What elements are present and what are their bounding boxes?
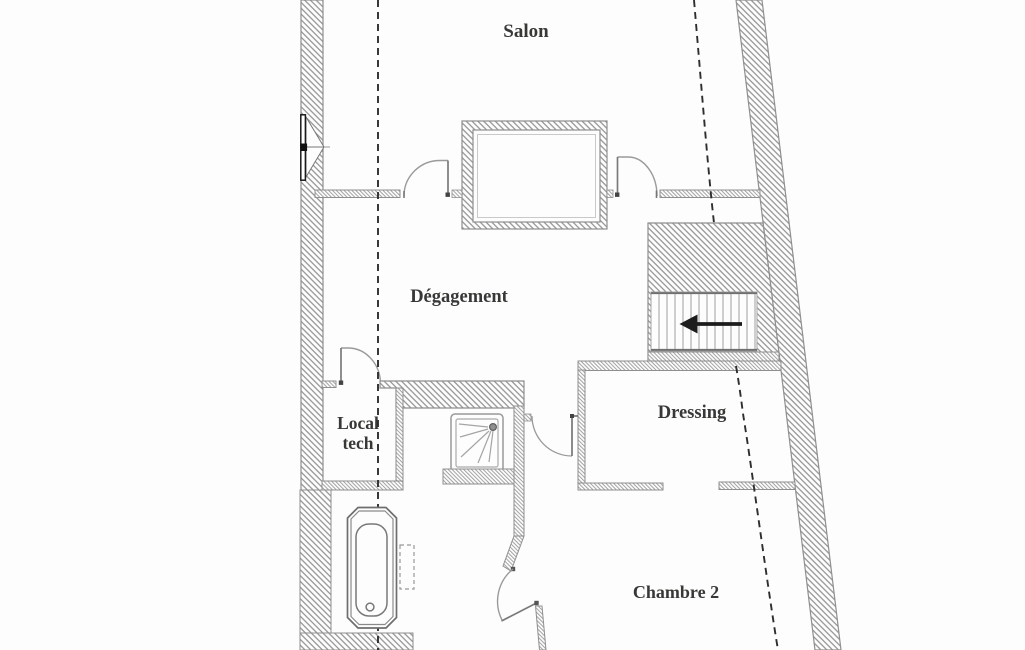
svg-text:Local: Local [337,413,379,433]
svg-text:Dégagement: Dégagement [410,287,508,307]
svg-text:tech: tech [342,433,373,453]
svg-text:Dressing: Dressing [658,403,727,423]
svg-text:Chambre 2: Chambre 2 [633,582,719,602]
svg-text:Salon: Salon [503,21,549,42]
